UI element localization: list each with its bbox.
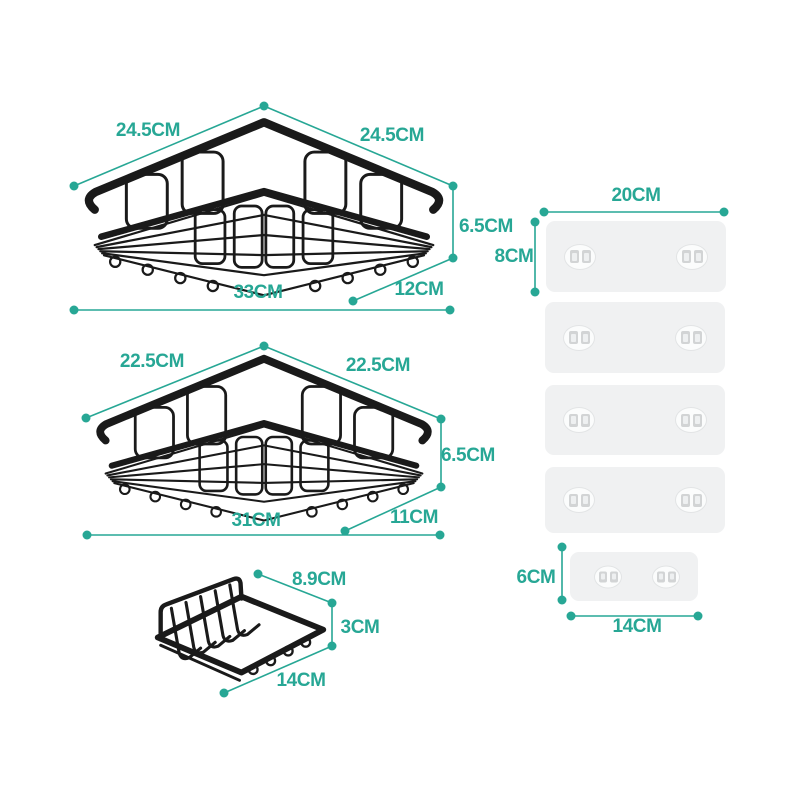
dim-label-basket-large-side-left: 24.5CM — [116, 120, 180, 142]
dimension-dot — [720, 208, 729, 217]
dim-label-soap-dish-depth: 8.9CM — [292, 569, 346, 591]
dim-label-basket-medium-width: 31CM — [231, 510, 280, 532]
basket-large-illustration — [89, 122, 439, 295]
hook-clip — [569, 494, 578, 507]
dimension-dot — [349, 297, 358, 306]
dimension-dot — [446, 306, 455, 315]
dimension-dot — [254, 570, 263, 579]
dim-label-plate-large-height: 8CM — [495, 246, 534, 268]
adhesive-plate-small — [570, 552, 698, 601]
dimension-dot — [83, 531, 92, 540]
dimension-dot — [531, 218, 540, 227]
hook-clip — [582, 250, 591, 263]
dimension-dot — [341, 527, 350, 536]
dim-label-basket-large-depth: 12CM — [394, 279, 443, 301]
dimension-dot — [70, 182, 79, 191]
hook-clip — [569, 331, 578, 344]
dimension-dot — [437, 483, 446, 492]
hook-mount-oval — [564, 244, 596, 270]
dim-label-soap-dish-width: 14CM — [276, 670, 325, 692]
dim-label-plate-small-height: 6CM — [517, 567, 556, 589]
dimension-dot — [82, 414, 91, 423]
dim-label-plate-small-width: 14CM — [612, 616, 661, 638]
dim-label-basket-large-side-right: 24.5CM — [360, 125, 424, 147]
soap-dish-illustration — [158, 579, 324, 681]
hook-mount-oval — [675, 487, 707, 513]
dim-label-basket-medium-side-right: 22.5CM — [346, 355, 410, 377]
hook-mount-oval — [563, 407, 595, 433]
hook-clip — [693, 414, 702, 427]
dimension-dot — [436, 531, 445, 540]
dimension-dot — [567, 612, 576, 621]
adhesive-plate-large-2 — [545, 302, 725, 373]
dim-label-plate-large-width: 20CM — [611, 185, 660, 207]
hook-clip — [569, 414, 578, 427]
dimension-dot — [437, 415, 446, 424]
hook-mount-oval — [675, 407, 707, 433]
product-dimension-diagram: 24.5CM 24.5CM 6.5CM 33CM 12CM 22.5CM 22.… — [0, 0, 800, 800]
hook-clip — [581, 331, 590, 344]
adhesive-plate-large-1 — [546, 221, 726, 292]
hook-clip — [681, 494, 690, 507]
dimension-dot — [694, 612, 703, 621]
dim-label-basket-large-width: 33CM — [233, 282, 282, 304]
hook-clip — [581, 494, 590, 507]
dimension-dot — [449, 182, 458, 191]
adhesive-plate-large-3 — [545, 385, 725, 455]
dimension-dot — [540, 208, 549, 217]
dim-label-soap-dish-height: 3CM — [341, 617, 380, 639]
dimension-line — [264, 106, 453, 186]
dimension-dot — [328, 599, 337, 608]
dim-label-basket-large-height: 6.5CM — [459, 216, 513, 238]
hook-mount-oval — [675, 325, 707, 351]
dimension-dot — [220, 689, 229, 698]
hook-clip — [570, 250, 579, 263]
dimension-dot — [558, 543, 567, 552]
dimension-dot — [531, 288, 540, 297]
dimension-dot — [328, 642, 337, 651]
hook-clip — [693, 331, 702, 344]
dimension-dot — [260, 342, 269, 351]
dimension-dot — [449, 254, 458, 263]
dimension-dot — [260, 102, 269, 111]
dim-label-basket-medium-height: 6.5CM — [441, 445, 495, 467]
hook-clip — [657, 571, 665, 582]
hook-clip — [599, 571, 607, 582]
adhesive-plate-large-4 — [545, 467, 725, 533]
hook-mount-oval — [652, 565, 680, 588]
hook-clip — [693, 494, 702, 507]
hook-clip — [681, 331, 690, 344]
hook-mount-oval — [676, 244, 708, 270]
dim-label-basket-medium-side-left: 22.5CM — [120, 351, 184, 373]
hook-mount-oval — [563, 325, 595, 351]
hook-clip — [681, 414, 690, 427]
hook-clip — [682, 250, 691, 263]
dimension-line — [74, 106, 264, 186]
hook-mount-oval — [594, 565, 622, 588]
dimension-dot — [558, 596, 567, 605]
basket-medium-illustration — [100, 359, 428, 521]
dimension-dot — [70, 306, 79, 315]
dim-label-basket-medium-depth: 11CM — [390, 507, 438, 529]
hook-clip — [610, 571, 618, 582]
hook-mount-oval — [563, 487, 595, 513]
hook-clip — [694, 250, 703, 263]
hook-clip — [668, 571, 676, 582]
hook-clip — [581, 414, 590, 427]
